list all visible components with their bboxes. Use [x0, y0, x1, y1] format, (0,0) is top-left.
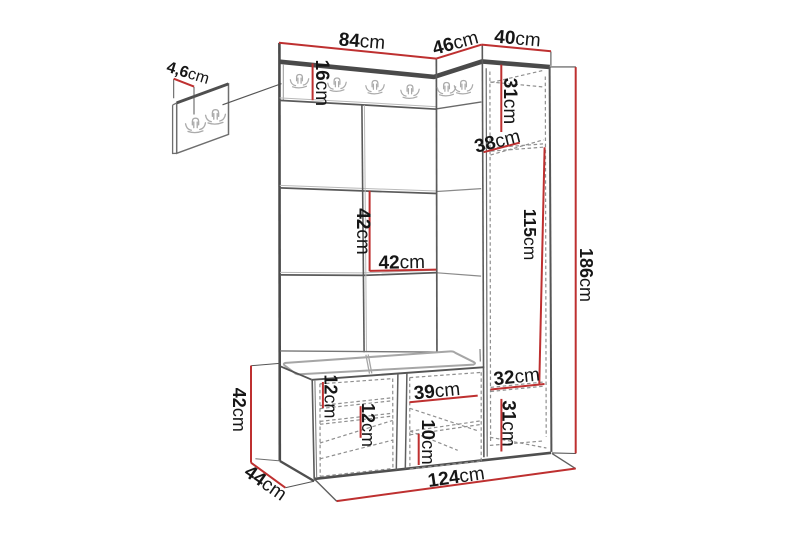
svg-text:10cm: 10cm — [418, 419, 439, 464]
svg-text:31cm: 31cm — [498, 400, 519, 446]
svg-text:84cm: 84cm — [338, 29, 386, 54]
svg-text:115cm: 115cm — [520, 209, 540, 261]
svg-text:186cm: 186cm — [576, 248, 596, 302]
svg-text:16cm: 16cm — [311, 60, 332, 106]
svg-text:12cm: 12cm — [358, 403, 378, 447]
svg-text:31cm: 31cm — [499, 78, 520, 124]
svg-text:42cm: 42cm — [229, 388, 249, 432]
svg-text:42cm: 42cm — [378, 252, 425, 274]
svg-text:40cm: 40cm — [493, 27, 541, 52]
svg-text:39cm: 39cm — [413, 379, 461, 404]
svg-text:12cm: 12cm — [321, 374, 341, 418]
svg-text:42cm: 42cm — [352, 208, 373, 254]
